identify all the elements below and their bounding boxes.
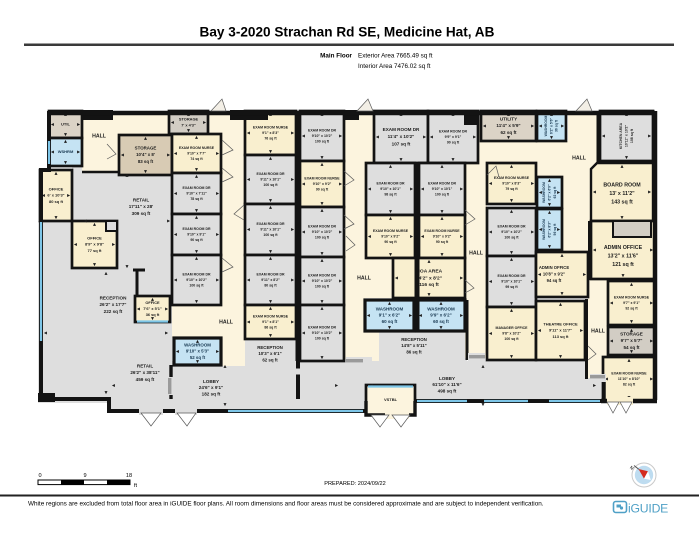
svg-text:9'11" x 10'1": 9'11" x 10'1" [260, 177, 281, 181]
svg-text:HALL: HALL [219, 319, 234, 325]
svg-text:498 sq ft: 498 sq ft [438, 388, 457, 393]
svg-text:36 sq ft: 36 sq ft [555, 119, 559, 132]
svg-text:9'10" x 7'7": 9'10" x 7'7" [187, 151, 206, 155]
svg-text:EXAM ROOM DR: EXAM ROOM DR [308, 274, 336, 278]
svg-text:9'10" x 10'1": 9'10" x 10'1" [501, 279, 522, 283]
svg-text:EXAM ROOM NURSE: EXAM ROOM NURSE [179, 146, 215, 150]
svg-text:EXAM ROOM NURSE: EXAM ROOM NURSE [373, 229, 409, 233]
svg-text:459 sq ft: 459 sq ft [136, 377, 155, 382]
svg-text:9'7" x 5'7": 9'7" x 5'7" [621, 338, 643, 343]
svg-text:90 sq ft: 90 sq ft [447, 140, 460, 144]
svg-text:WASHROOM: WASHROOM [544, 115, 548, 136]
svg-text:62 sq ft: 62 sq ft [553, 186, 557, 199]
svg-text:RETAIL: RETAIL [137, 364, 153, 369]
svg-text:9'10" x 10'2": 9'10" x 10'2" [312, 331, 333, 335]
svg-text:WASHROOM: WASHROOM [427, 306, 455, 311]
svg-text:MOA AREA: MOA AREA [416, 268, 443, 274]
svg-text:7'6" x 5'1": 7'6" x 5'1" [143, 306, 162, 311]
svg-text:76 sq ft: 76 sq ft [264, 136, 277, 140]
svg-text:9'9" x 9'1": 9'9" x 9'1" [445, 135, 462, 139]
svg-text:EXAM ROOM NURSE: EXAM ROOM NURSE [304, 177, 340, 181]
svg-text:9'1" x 8'3": 9'1" x 8'3" [262, 131, 279, 135]
svg-text:EXAM ROOM DR: EXAM ROOM DR [183, 186, 211, 190]
svg-text:62 sq ft: 62 sq ft [500, 130, 517, 135]
svg-text:EXAM ROOM DR: EXAM ROOM DR [257, 222, 285, 226]
svg-text:100 sq ft: 100 sq ft [504, 337, 519, 341]
svg-text:PREPARED: 2024/09/22: PREPARED: 2024/09/22 [324, 481, 385, 487]
svg-text:113 sq ft: 113 sq ft [552, 334, 569, 339]
svg-text:EXAM ROOM NURSE: EXAM ROOM NURSE [614, 296, 650, 300]
svg-text:92 sq ft: 92 sq ft [625, 306, 638, 310]
svg-text:9'10" x 10'2": 9'10" x 10'2" [312, 279, 333, 283]
svg-text:108 sq ft: 108 sq ft [630, 128, 634, 143]
svg-text:77 sq ft: 77 sq ft [87, 248, 102, 253]
svg-text:14'2" x 8'2": 14'2" x 8'2" [416, 275, 442, 281]
svg-text:EXAM ROOM DR: EXAM ROOM DR [308, 225, 336, 229]
svg-text:LOBBY: LOBBY [203, 379, 219, 384]
svg-text:EXAM ROOM DR: EXAM ROOM DR [498, 225, 526, 229]
svg-text:HALL: HALL [469, 250, 484, 256]
svg-text:Main Floor: Main Floor [320, 53, 352, 60]
svg-text:9'10" x 5'3": 9'10" x 5'3" [186, 349, 209, 354]
svg-text:Interior Area 7476.02 sq ft: Interior Area 7476.02 sq ft [358, 63, 431, 70]
svg-text:EXAM ROOM DR: EXAM ROOM DR [383, 127, 420, 132]
svg-text:143 sq ft: 143 sq ft [611, 200, 633, 206]
svg-text:HALL: HALL [572, 155, 587, 161]
svg-text:14'8" x 5'11": 14'8" x 5'11" [401, 343, 427, 348]
svg-text:9'1" x 8'1": 9'1" x 8'1" [262, 320, 279, 324]
svg-text:EXAM ROOM NURSE: EXAM ROOM NURSE [253, 315, 289, 319]
svg-text:100 sq ft: 100 sq ft [435, 192, 450, 196]
svg-text:EXAM ROOM DR: EXAM ROOM DR [257, 273, 285, 277]
svg-text:9'11" x 10'1": 9'11" x 10'1" [260, 227, 281, 231]
svg-text:100 sq ft: 100 sq ft [504, 235, 519, 239]
svg-text:100 sq ft: 100 sq ft [189, 283, 204, 287]
svg-text:9'10" x 9'2": 9'10" x 9'2" [313, 182, 332, 186]
svg-text:94 sq ft: 94 sq ft [547, 278, 562, 283]
svg-text:UTIL: UTIL [61, 122, 70, 127]
svg-text:9'7" x 9'1": 9'7" x 9'1" [623, 301, 640, 305]
svg-text:107 sq ft: 107 sq ft [392, 141, 411, 146]
svg-text:7' x 4'3": 7' x 4'3" [181, 122, 196, 127]
svg-text:74 sq ft: 74 sq ft [190, 157, 203, 161]
svg-text:RECEPTION: RECEPTION [100, 296, 127, 301]
svg-text:222 sq ft: 222 sq ft [104, 309, 123, 314]
svg-text:54 sq ft: 54 sq ft [623, 345, 640, 350]
svg-text:309 sq ft: 309 sq ft [132, 211, 151, 216]
svg-text:90 sq ft: 90 sq ft [384, 240, 397, 244]
svg-text:Bay 3-2020 Strachan Rd SE, Med: Bay 3-2020 Strachan Rd SE, Medicine Hat,… [200, 25, 495, 40]
svg-text:9'10" x 9'1": 9'10" x 9'1" [187, 232, 206, 236]
svg-text:60 sq ft: 60 sq ft [382, 319, 398, 324]
svg-text:82 sq ft: 82 sq ft [623, 382, 636, 386]
svg-text:OFFICE: OFFICE [87, 235, 102, 240]
svg-text:86 sq ft: 86 sq ft [406, 349, 422, 354]
svg-text:13'2" x 11'6": 13'2" x 11'6" [608, 253, 639, 259]
svg-text:100 sq ft: 100 sq ft [263, 183, 278, 187]
svg-text:24'6" x 9'1": 24'6" x 9'1" [199, 385, 223, 390]
svg-text:61'10" x 11'6": 61'10" x 11'6" [432, 382, 461, 387]
svg-text:EXAM ROOM DR: EXAM ROOM DR [428, 182, 456, 186]
svg-text:BOARD ROOM: BOARD ROOM [603, 182, 641, 188]
svg-text:LOBBY: LOBBY [439, 376, 455, 381]
svg-text:9'11" x 8'2": 9'11" x 8'2" [261, 278, 280, 282]
svg-text:18: 18 [126, 473, 132, 479]
svg-text:EXAM ROOM DR: EXAM ROOM DR [377, 182, 405, 186]
svg-text:WSHRM: WSHRM [58, 149, 74, 154]
svg-text:100 sq ft: 100 sq ft [315, 139, 330, 143]
svg-text:80 sq ft: 80 sq ft [49, 199, 64, 204]
svg-text:STORAGE: STORAGE [135, 146, 157, 151]
svg-text:STORAGE: STORAGE [620, 332, 643, 337]
svg-text:11'4" x 5'9": 11'4" x 5'9" [496, 123, 520, 128]
svg-text:9'10" x 9'2": 9'10" x 9'2" [381, 234, 400, 238]
svg-text:80 sq ft: 80 sq ft [264, 283, 277, 287]
svg-text:121 sq ft: 121 sq ft [612, 262, 634, 268]
svg-text:52 sq ft: 52 sq ft [190, 355, 206, 360]
svg-text:56 sq ft: 56 sq ft [553, 223, 557, 236]
svg-text:White regions are excluded fro: White regions are excluded from total fl… [28, 501, 544, 508]
svg-text:ADMIN OFFICE: ADMIN OFFICE [604, 245, 643, 251]
svg-text:9'10" x 10'1": 9'10" x 10'1" [380, 187, 401, 191]
svg-text:13' x 11'2": 13' x 11'2" [609, 191, 635, 197]
svg-text:6'2" x 6'9": 6'2" x 6'9" [547, 184, 551, 201]
svg-text:9'10" x 9'2": 9'10" x 9'2" [433, 234, 452, 238]
svg-text:90 sq ft: 90 sq ft [316, 187, 329, 191]
svg-text:HALL: HALL [357, 275, 372, 281]
svg-text:6'2" x 5'6": 6'2" x 5'6" [549, 118, 553, 135]
svg-text:WASHROOM: WASHROOM [542, 219, 546, 240]
svg-text:9'11" x 11'7": 9'11" x 11'7" [549, 328, 572, 333]
svg-text:83 sq ft: 83 sq ft [138, 159, 154, 164]
svg-text:100 sq ft: 100 sq ft [315, 336, 330, 340]
svg-text:VSTBL: VSTBL [384, 397, 398, 402]
svg-text:iGUIDE: iGUIDE [628, 502, 668, 516]
svg-text:EXAM ROOM DR: EXAM ROOM DR [308, 326, 336, 330]
svg-text:MANAGER OFFICE: MANAGER OFFICE [496, 326, 529, 330]
svg-text:100 sq ft: 100 sq ft [315, 284, 330, 288]
svg-text:60 sq ft: 60 sq ft [433, 319, 449, 324]
svg-text:26'2" x 17'7": 26'2" x 17'7" [100, 302, 127, 307]
svg-text:79 sq ft: 79 sq ft [505, 187, 518, 191]
svg-text:EXAM ROOM DR: EXAM ROOM DR [439, 130, 467, 134]
svg-text:8'9" x 9'8": 8'9" x 9'8" [85, 242, 104, 247]
svg-text:98 sq ft: 98 sq ft [384, 192, 397, 196]
svg-text:182 sq ft: 182 sq ft [202, 391, 221, 396]
svg-text:116 sq ft: 116 sq ft [419, 282, 439, 288]
svg-text:0: 0 [38, 473, 41, 479]
svg-text:Exterior Area 7665.49 sq ft: Exterior Area 7665.49 sq ft [358, 53, 433, 60]
svg-text:6' x 10'3": 6' x 10'3" [47, 193, 64, 198]
svg-text:HALL: HALL [92, 133, 107, 139]
svg-text:OFFICE: OFFICE [145, 300, 160, 305]
svg-text:9'10" x 10'2": 9'10" x 10'2" [186, 278, 207, 282]
svg-text:9'9" x 6'2": 9'9" x 6'2" [430, 313, 451, 318]
svg-text:10'3" x 6'1": 10'3" x 6'1" [258, 351, 281, 356]
svg-text:90 sq ft: 90 sq ft [436, 240, 449, 244]
svg-text:9'10" x 10'2": 9'10" x 10'2" [501, 230, 522, 234]
svg-text:9'1" x 6'2": 9'1" x 6'2" [379, 313, 400, 318]
svg-text:26'2" x 38'11": 26'2" x 38'11" [130, 370, 159, 375]
svg-text:11'10" x 8'10": 11'10" x 8'10" [618, 377, 641, 381]
svg-text:11'4" x 10'2": 11'4" x 10'2" [388, 134, 415, 139]
svg-text:36 sq ft: 36 sq ft [146, 312, 160, 317]
svg-text:THEATRE OFFICE: THEATRE OFFICE [543, 321, 578, 326]
svg-text:EXAM ROOM DR: EXAM ROOM DR [257, 172, 285, 176]
svg-text:KITCHEN AREA: KITCHEN AREA [619, 122, 623, 149]
svg-text:9'10" x 10'1": 9'10" x 10'1" [432, 187, 453, 191]
svg-text:10'8" x 9'2": 10'8" x 9'2" [543, 272, 565, 277]
svg-text:EXAM ROOM NURSE: EXAM ROOM NURSE [494, 176, 530, 180]
svg-text:RECEPTION: RECEPTION [257, 345, 283, 350]
svg-text:STORAGE: STORAGE [179, 117, 199, 122]
svg-text:EXAM ROOM DR: EXAM ROOM DR [183, 227, 211, 231]
svg-text:EXAM ROOM DR: EXAM ROOM DR [308, 129, 336, 133]
svg-text:100 sq ft: 100 sq ft [315, 235, 330, 239]
svg-text:10'4" x 8': 10'4" x 8' [136, 152, 155, 157]
svg-text:RECEPTION: RECEPTION [401, 337, 427, 342]
svg-text:RETAIL: RETAIL [133, 198, 149, 203]
svg-text:WASHROOM: WASHROOM [376, 306, 404, 311]
svg-text:WASHROOM: WASHROOM [542, 182, 546, 203]
svg-text:17'11" x 28': 17'11" x 28' [129, 204, 154, 209]
svg-text:100 sq ft: 100 sq ft [263, 233, 278, 237]
svg-text:EXAM ROOM DR: EXAM ROOM DR [498, 274, 526, 278]
svg-text:9'10" x 7'11": 9'10" x 7'11" [186, 191, 207, 195]
svg-text:EXAM ROOM NURSE: EXAM ROOM NURSE [253, 126, 289, 130]
svg-text:ADMIN OFFICE: ADMIN OFFICE [539, 265, 569, 270]
svg-text:9'8" x 10'2": 9'8" x 10'2" [502, 331, 521, 335]
svg-text:EXAM ROOM NURSE: EXAM ROOM NURSE [611, 372, 647, 376]
svg-text:62 sq ft: 62 sq ft [262, 357, 278, 362]
svg-text:EXAM ROOM NURSE: EXAM ROOM NURSE [424, 229, 460, 233]
svg-text:6'2" x 8'3": 6'2" x 8'3" [547, 221, 551, 238]
svg-text:9'10" x 8'3": 9'10" x 8'3" [502, 181, 521, 185]
svg-text:9'10" x 10'2": 9'10" x 10'2" [312, 134, 333, 138]
svg-text:9: 9 [83, 473, 86, 479]
svg-text:78 sq ft: 78 sq ft [190, 197, 203, 201]
svg-text:EXAM ROOM DR: EXAM ROOM DR [183, 273, 211, 277]
svg-text:ft: ft [134, 483, 138, 489]
svg-text:UTILITY: UTILITY [500, 117, 517, 122]
svg-text:HALL: HALL [591, 328, 606, 334]
svg-text:OFFICE: OFFICE [49, 186, 64, 191]
svg-text:86 sq ft: 86 sq ft [264, 325, 277, 329]
svg-text:WASHROOM: WASHROOM [184, 342, 211, 347]
svg-text:90 sq ft: 90 sq ft [190, 238, 203, 242]
svg-text:99 sq ft: 99 sq ft [505, 285, 518, 289]
svg-text:10'11" x 10'2": 10'11" x 10'2" [624, 125, 628, 148]
svg-text:9'10" x 10'2": 9'10" x 10'2" [312, 230, 333, 234]
